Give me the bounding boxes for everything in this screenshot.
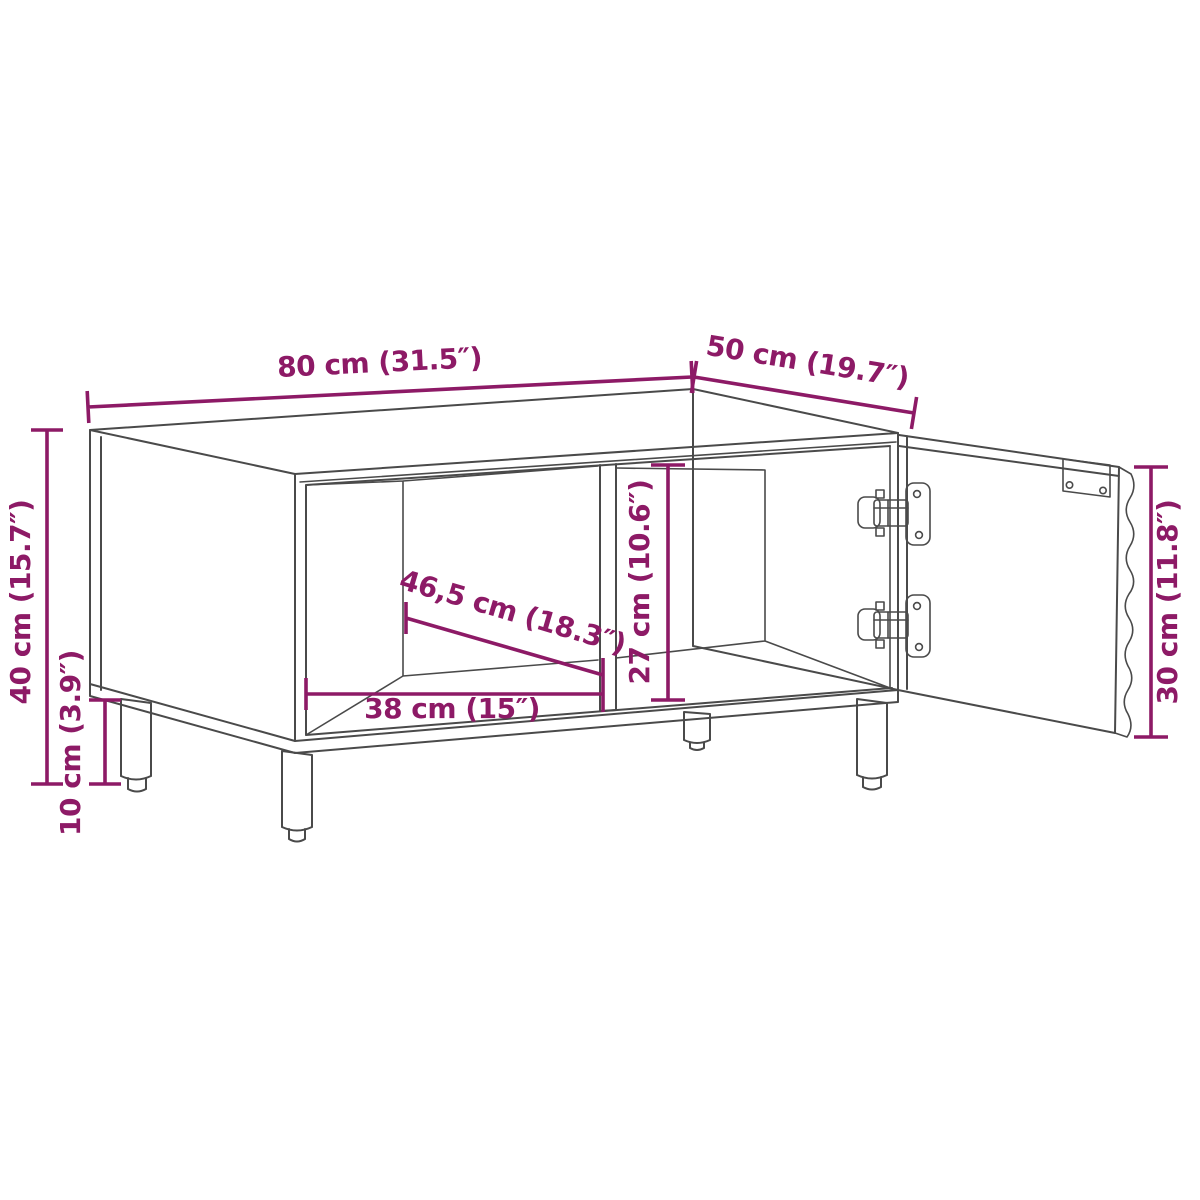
handle-screw xyxy=(1066,482,1072,488)
hinge-screw xyxy=(916,532,923,539)
dimension-door-height: 30 cm (11.8″) xyxy=(1134,467,1184,737)
hinge-screw xyxy=(914,491,921,498)
dimension-inner-height: 27 cm (10.6″) xyxy=(623,465,685,700)
hinge-arm xyxy=(874,500,908,526)
leg-back-left xyxy=(121,699,151,792)
open-door xyxy=(898,435,1134,737)
dimension-inner-width-label: 38 cm (15″) xyxy=(364,692,540,725)
door-panel xyxy=(898,435,1119,733)
leg-front-right xyxy=(857,699,887,790)
dimension-leg-height-label: 10 cm (3.9″) xyxy=(54,650,87,836)
cabinet-left-panel xyxy=(90,430,295,741)
hinge-screw xyxy=(916,644,923,651)
hinge-mount-plate xyxy=(906,483,930,545)
dimension-door-height-label: 30 cm (11.8″) xyxy=(1151,500,1184,705)
dimension-width-label: 80 cm (31.5″) xyxy=(276,341,482,384)
furniture-dimension-diagram: 80 cm (31.5″) 50 cm (19.7″) 40 cm (15.7″… xyxy=(0,0,1200,1200)
hinge-top xyxy=(858,483,930,545)
dimension-leg-height-line xyxy=(89,700,121,784)
hinge-cup xyxy=(858,609,880,640)
cabinet-drawing xyxy=(90,389,1134,842)
hinge-cup xyxy=(858,497,880,528)
handle-screw xyxy=(1100,487,1106,493)
dimension-inner-height-label: 27 cm (10.6″) xyxy=(623,480,656,685)
hinge-detail xyxy=(874,602,908,648)
diagram-svg: 80 cm (31.5″) 50 cm (19.7″) 40 cm (15.7″… xyxy=(0,0,1200,1200)
dimension-inner-diagonal: 46,5 cm (18.3″) xyxy=(396,563,630,675)
right-compartment-interior xyxy=(616,446,890,688)
hinge-mount-plate xyxy=(906,595,930,657)
dimension-inner-height-line xyxy=(651,465,685,700)
hinge-bottom xyxy=(858,595,930,657)
leg-front-left xyxy=(282,751,312,842)
hinge-arm xyxy=(874,612,908,638)
dimension-height-label: 40 cm (15.7″) xyxy=(4,500,37,705)
hinge-screw xyxy=(914,603,921,610)
door-handle-plate xyxy=(1063,459,1110,497)
dimension-leg-height: 10 cm (3.9″) xyxy=(54,650,121,836)
dimension-inner-diagonal-label: 46,5 cm (18.3″) xyxy=(396,563,630,661)
hinge-detail xyxy=(874,490,908,536)
